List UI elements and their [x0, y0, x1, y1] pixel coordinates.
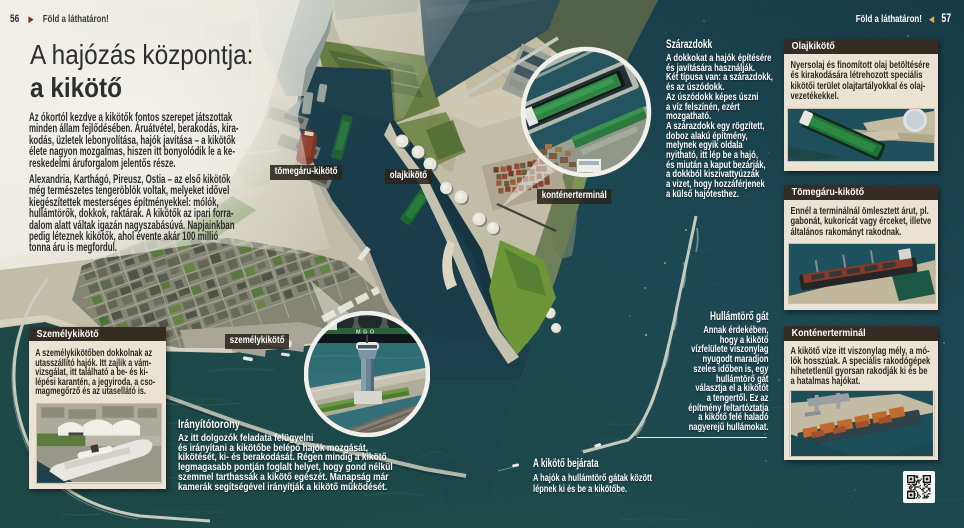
svg-text:MGO: MGO	[356, 330, 377, 336]
